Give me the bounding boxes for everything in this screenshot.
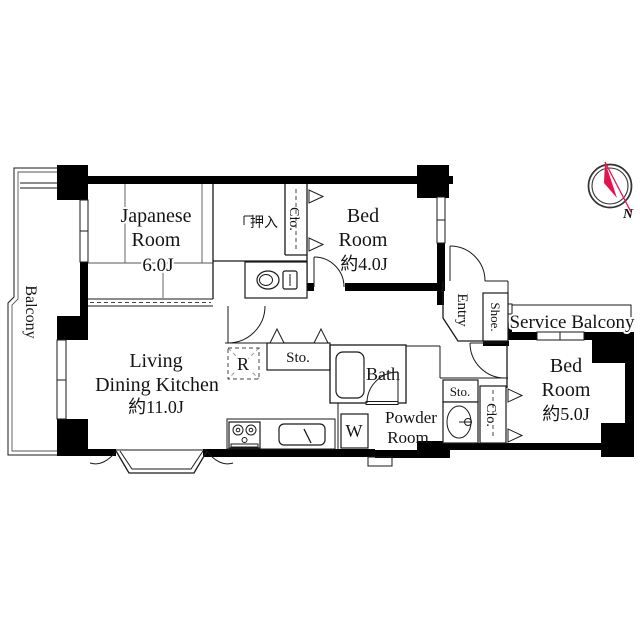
wall-segment xyxy=(417,165,449,198)
sink-icon xyxy=(279,424,325,445)
bedroom2-label-1: Bed xyxy=(550,355,582,377)
stove-icon xyxy=(229,422,260,448)
closet1-door-mark-top xyxy=(309,190,323,203)
wall-segment xyxy=(57,176,453,184)
wall-segment xyxy=(584,332,596,340)
storage-door-mark-left xyxy=(270,329,284,343)
bedroom1-label-1: Bed xyxy=(347,205,379,227)
washer-space: W xyxy=(341,414,368,448)
wall-segment xyxy=(508,332,537,340)
toilet-room xyxy=(245,262,307,298)
sliding-door-japanese-ldk xyxy=(88,299,213,306)
balcony-label: Balcony xyxy=(22,285,39,338)
wall-segment xyxy=(592,332,634,363)
wall-segment xyxy=(203,449,375,457)
storage-powder-label: Sto. xyxy=(450,384,471,399)
bedroom1-size: 約4.0J xyxy=(340,254,388,274)
refrigerator-space: R xyxy=(228,348,259,379)
service-balcony: Service Balcony xyxy=(509,305,635,333)
bedroom2-label-2: Room xyxy=(542,379,591,401)
bedroom2-door xyxy=(470,343,505,378)
compass-icon: N xyxy=(589,162,634,222)
bedroom1-label-2: Room xyxy=(339,229,388,251)
entry-label: Entry xyxy=(454,293,470,327)
hall-walls xyxy=(406,346,508,378)
refrigerator-label: R xyxy=(237,354,249,374)
wall-segment xyxy=(345,283,419,291)
storage-hall-label: Sto. xyxy=(286,350,310,366)
service-balcony-label: Service Balcony xyxy=(509,312,635,333)
ldk-label-1: Living xyxy=(129,350,182,372)
washbasin-icon xyxy=(443,402,478,443)
window-japanese-room xyxy=(80,200,88,262)
front-door xyxy=(450,246,485,281)
window-ldk-balcony xyxy=(57,340,66,419)
exterior-step xyxy=(368,457,392,466)
compass-north-label: N xyxy=(622,207,634,222)
closet2-door-mark-top xyxy=(508,389,522,402)
wall-segment xyxy=(625,360,634,426)
closet2-door-mark-bottom xyxy=(508,429,522,442)
ldk-size: 約11.0J xyxy=(128,397,184,417)
bath-room: Bath xyxy=(330,345,406,405)
wall-segment xyxy=(601,423,634,457)
japanese-room-size: 6.0J xyxy=(142,255,173,276)
floor-plan-canvas: Balcony xyxy=(0,0,640,640)
japanese-room-label-1: Japanese xyxy=(120,205,191,227)
ldk-door xyxy=(228,306,265,343)
window-bedroom2 xyxy=(537,332,584,340)
storage-door-mark-right xyxy=(314,329,328,343)
ldk: Living Dining Kitchen 約11.0J R Sto. xyxy=(95,306,335,449)
oshiire-label: 押入 xyxy=(250,215,278,231)
wall-segment xyxy=(57,419,88,456)
storage-hall: Sto. xyxy=(267,329,330,370)
wall-segment xyxy=(57,316,88,340)
bedroom1: Bed Room 約4.0J xyxy=(314,205,388,287)
bathtub-icon xyxy=(336,352,364,398)
japanese-room: Japanese Room 6.0J xyxy=(88,184,213,306)
kitchen-counter xyxy=(227,419,335,449)
bath-door-gap xyxy=(366,402,398,405)
bedroom2-size: 約5.0J xyxy=(542,404,590,424)
closet1-label: Clo. xyxy=(286,207,301,231)
bath-label: Bath xyxy=(366,364,400,384)
washer-label: W xyxy=(346,421,363,441)
balcony: Balcony xyxy=(8,168,58,455)
window-bedroom1 xyxy=(437,197,445,243)
balcony-divider xyxy=(20,183,57,188)
ldk-label-2: Dining Kitchen xyxy=(95,374,219,396)
floor-plan-drawing: Balcony xyxy=(0,0,640,640)
bedroom2: Bed Room 約5.0J Clo. xyxy=(470,343,591,443)
closet1-door-mark-bottom xyxy=(309,238,323,251)
wall-segment xyxy=(80,262,88,320)
entry-area: Entry Shoe. xyxy=(443,246,508,341)
japanese-room-label-2: Room xyxy=(132,229,181,251)
shoe-closet-label: Shoe. xyxy=(488,302,503,331)
powder-room-label-2: Room xyxy=(387,428,429,447)
wall-segment xyxy=(88,449,116,456)
powder-room-label-1: Powder xyxy=(385,408,437,427)
closet2-label: Clo. xyxy=(483,403,498,427)
